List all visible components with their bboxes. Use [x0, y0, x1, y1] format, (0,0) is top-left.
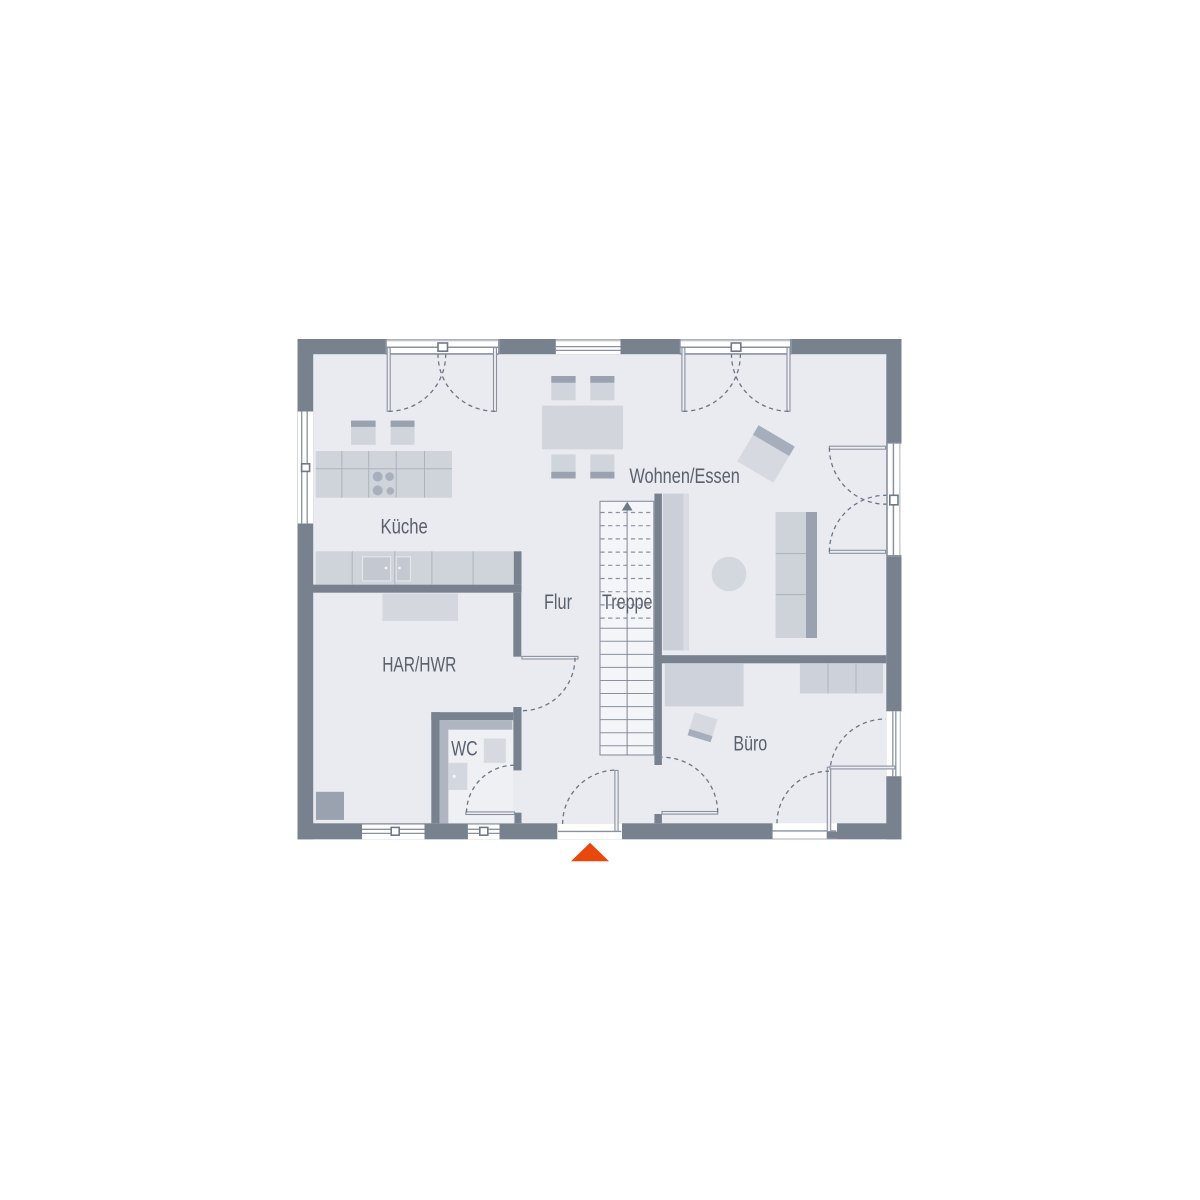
- svg-text:Treppe: Treppe: [602, 591, 653, 614]
- svg-text:Flur: Flur: [544, 591, 572, 614]
- svg-text:WC: WC: [451, 737, 478, 760]
- svg-text:Büro: Büro: [733, 732, 767, 755]
- svg-text:HAR/HWR: HAR/HWR: [382, 654, 456, 677]
- svg-text:Wohnen/Essen: Wohnen/Essen: [629, 465, 740, 488]
- svg-text:Küche: Küche: [381, 516, 428, 539]
